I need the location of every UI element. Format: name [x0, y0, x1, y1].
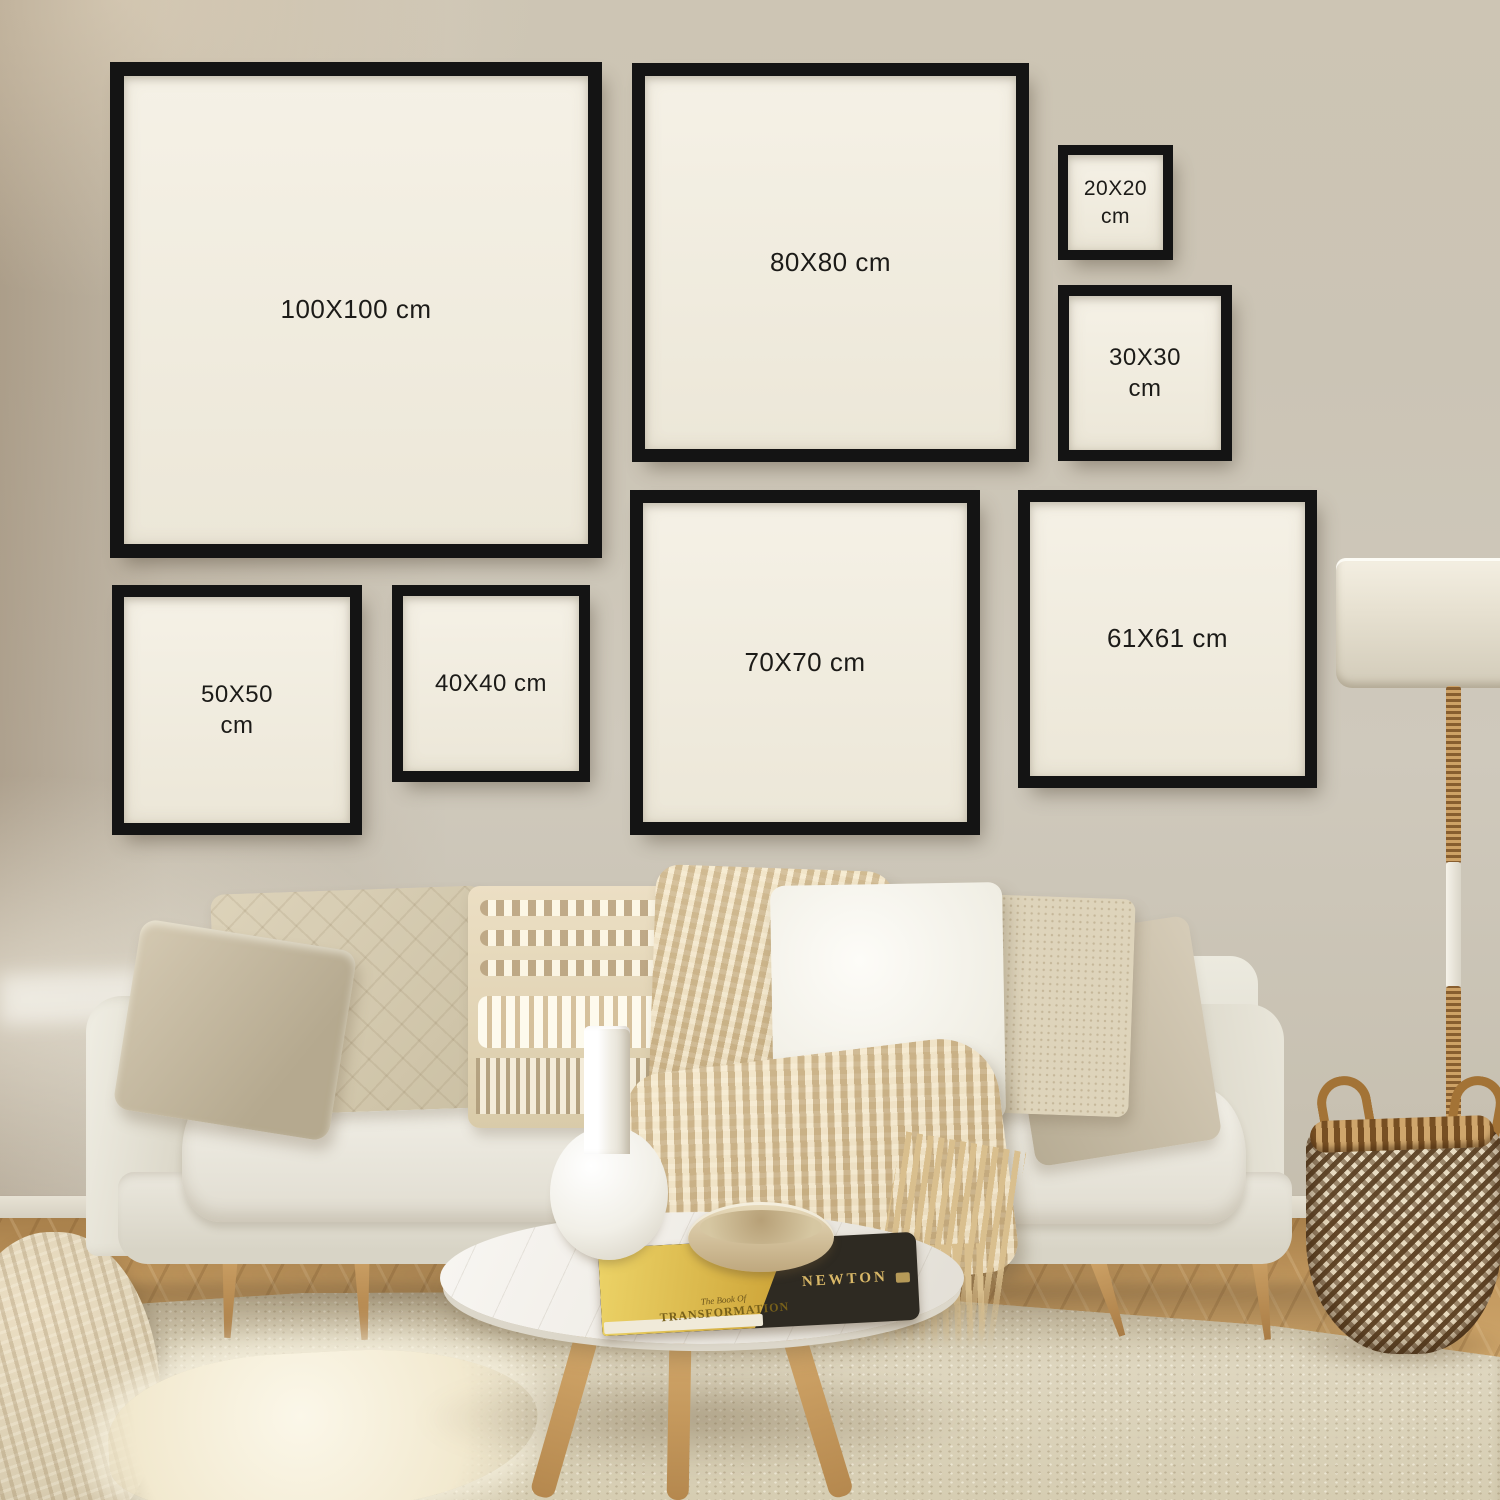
frame-mat: 61X61 cm: [1030, 502, 1305, 776]
bowl-interior: [700, 1210, 822, 1244]
size-frame-100x100: 100X100 cm: [110, 62, 602, 558]
frame-size-label: 80X80 cm: [645, 76, 1016, 449]
frame-mat: 30X30 cm: [1069, 296, 1221, 450]
ceramic-bowl: [688, 1202, 834, 1272]
frame-size-label: 20X20 cm: [1068, 155, 1163, 250]
table-shadow: [420, 1366, 980, 1470]
frame-mat: 50X50 cm: [124, 597, 350, 823]
basket-rim: [1309, 1115, 1494, 1153]
book-spine-title: NEWTON: [801, 1269, 888, 1291]
floor-lamp-shade: [1336, 558, 1500, 688]
size-frame-50x50: 50X50 cm: [112, 585, 362, 835]
frame-mat: 40X40 cm: [403, 596, 579, 771]
size-frame-61x61: 61X61 cm: [1018, 490, 1317, 788]
frame-mat: 20X20 cm: [1068, 155, 1163, 250]
size-frame-80x80: 80X80 cm: [632, 63, 1029, 462]
frame-size-label: 40X40 cm: [403, 596, 579, 771]
woven-basket: [1306, 1122, 1500, 1354]
frame-size-label: 30X30 cm: [1069, 296, 1221, 450]
floor-lamp-pole: [1446, 686, 1461, 864]
size-frame-40x40: 40X40 cm: [392, 585, 590, 782]
frame-size-label: 70X70 cm: [643, 503, 967, 822]
frame-size-label: 61X61 cm: [1030, 502, 1305, 776]
frame-mat: 70X70 cm: [643, 503, 967, 822]
frame-size-label: 50X50 cm: [124, 597, 350, 823]
frame-mat: 80X80 cm: [645, 76, 1016, 449]
white-vase-neck: [584, 1026, 630, 1154]
table-leg: [667, 1342, 692, 1500]
floor-lamp-pole: [1446, 862, 1461, 988]
book-publisher-mark: [896, 1272, 911, 1283]
frame-mat: 100X100 cm: [124, 76, 588, 544]
frame-size-label: 100X100 cm: [124, 76, 588, 544]
size-frame-20x20: 20X20 cm: [1058, 145, 1173, 260]
pillow-leaning-left: [112, 918, 357, 1142]
living-room-size-guide-photo: 100X100 cm 80X80 cm 20X20 cm 30X30 cm: [0, 0, 1500, 1500]
size-frame-30x30: 30X30 cm: [1058, 285, 1232, 461]
size-frame-70x70: 70X70 cm: [630, 490, 980, 835]
